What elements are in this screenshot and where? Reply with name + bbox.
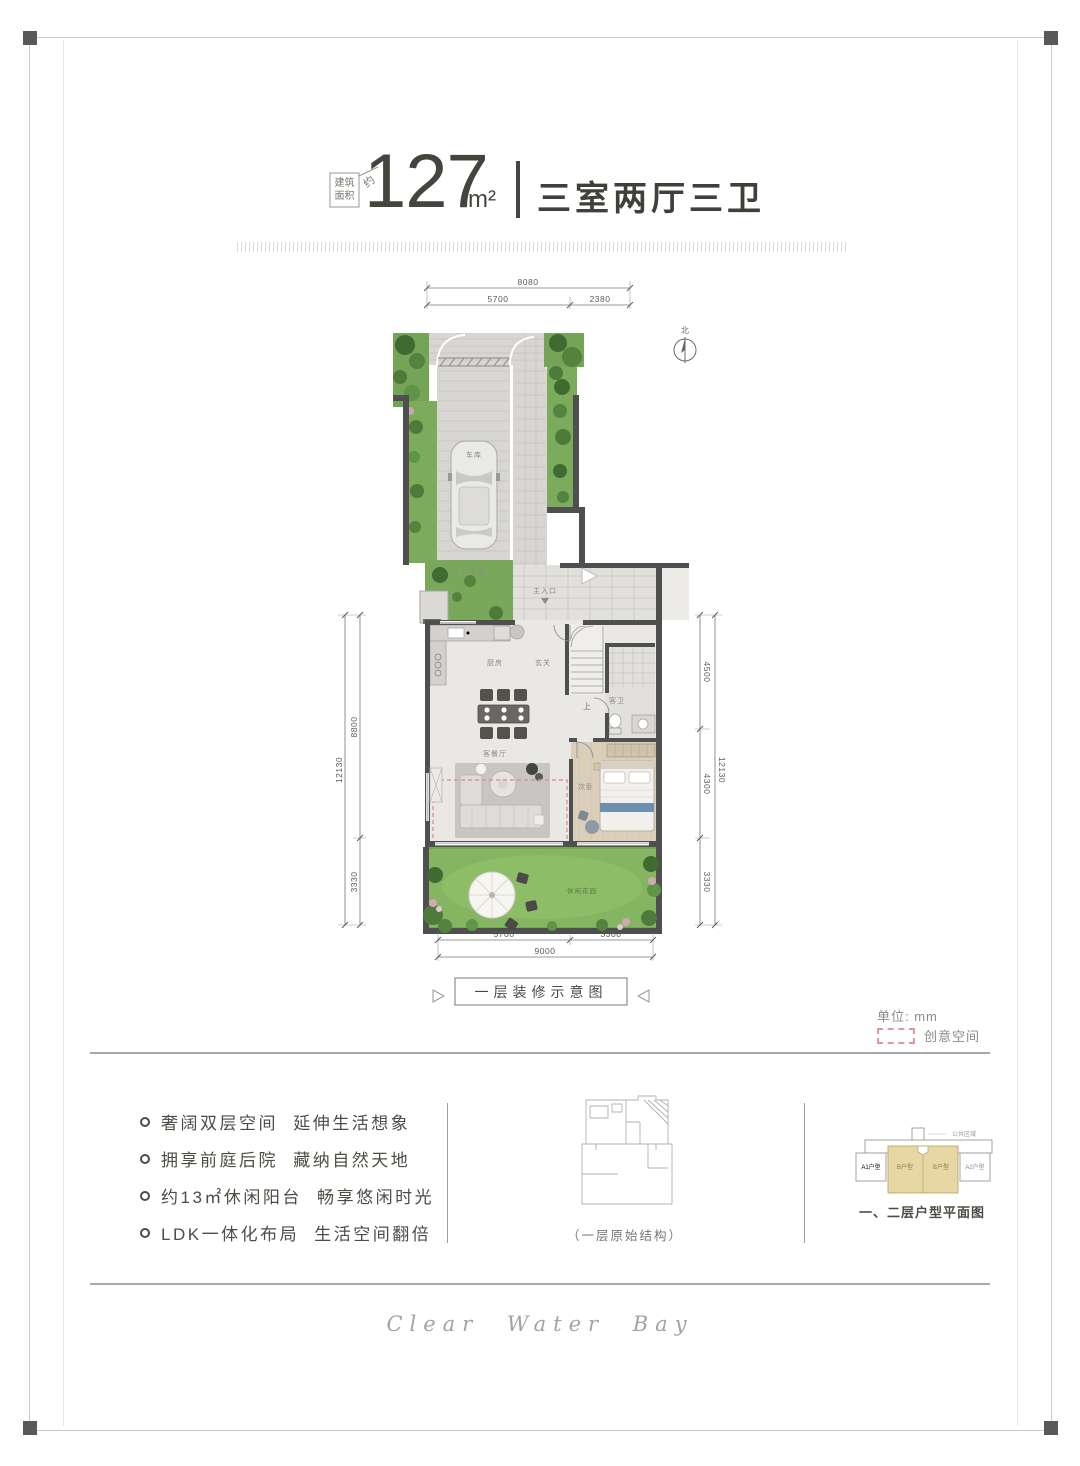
rear-garden: 休闲花园 <box>423 847 662 934</box>
key-plan-thumbnail: 公共区域 A1户型 B户型 B户型 A2户型 <box>848 1116 1000 1198</box>
dim-bottom-total: 9000 <box>535 946 556 956</box>
living-dining-label: 客餐厅 <box>483 749 507 758</box>
bedroom-label: 次卧 <box>578 782 594 791</box>
area-prefix-line1: 建筑 <box>335 176 355 189</box>
dim-top-left: 5700 <box>488 294 509 304</box>
stairs <box>569 624 605 695</box>
living-furniture <box>455 763 550 838</box>
decor-hatch-strip <box>237 242 848 252</box>
corner-mark <box>23 1421 37 1435</box>
layout-title: 三室两厅三卫 <box>537 171 765 220</box>
dim-right-upper: 4500 <box>702 662 712 683</box>
feature-item: 拥享前庭后院 藏纳自然天地 <box>140 1140 434 1177</box>
corner-mark <box>1044 1421 1058 1435</box>
dimension-right: 4500 4300 3330 12130 <box>695 612 727 928</box>
dimension-left: 12130 8800 3330 <box>334 612 366 928</box>
unit-note: 单位: mm <box>877 1006 938 1025</box>
compass-icon: 北 <box>674 326 696 363</box>
stairs-up-label: 上 <box>583 702 591 711</box>
feature-text: 拥享前庭后院 藏纳自然天地 <box>161 1146 410 1171</box>
dim-top-total: 8080 <box>518 277 539 287</box>
dimension-top: 8080 5700 2380 <box>424 277 633 309</box>
dim-left-upper: 8800 <box>349 717 359 738</box>
plan-caption-text: 一层装修示意图 <box>475 984 608 1000</box>
scan-line-left <box>63 40 64 1426</box>
dim-right-middle: 4300 <box>702 774 712 795</box>
section-divider <box>90 1052 990 1054</box>
feature-item: LDK一体化布局 生活空间翻倍 <box>140 1214 434 1251</box>
bullet-icon <box>140 1228 150 1238</box>
compass-north-label: 北 <box>681 326 689 335</box>
plan-caption: 一层装修示意图 <box>433 978 649 1005</box>
dim-right-outer: 12130 <box>717 757 727 783</box>
feature-text: LDK一体化布局 生活空间翻倍 <box>161 1220 431 1245</box>
original-structure-thumbnail <box>560 1092 690 1217</box>
caption-arrow-right-icon <box>638 990 649 1002</box>
feature-item: 约13㎡休闲阳台 畅享悠闲时光 <box>140 1177 434 1214</box>
bullet-icon <box>140 1191 150 1201</box>
area-prefix-line2: 面积 <box>335 190 355 202</box>
dining-table <box>478 689 529 739</box>
feature-text: 奢阔双层空间 延伸生活想象 <box>161 1109 410 1134</box>
bullet-icon <box>140 1154 150 1164</box>
key-plan-unit-b-right: B户型 <box>933 1163 949 1171</box>
section-divider <box>90 1283 990 1285</box>
entry-garden-label: 入户花园 <box>454 567 486 576</box>
kitchen-label: 厨房 <box>487 658 503 667</box>
dim-left-lower: 3330 <box>349 872 359 893</box>
interior: 上 厨房 玄关 客卫 <box>425 620 662 847</box>
original-structure-caption: （一层原始结构） <box>545 1225 705 1244</box>
column-divider <box>804 1103 805 1243</box>
corner-mark <box>23 31 37 45</box>
car: 车库 <box>448 441 500 549</box>
guest-bath-label: 客卫 <box>609 696 625 705</box>
feature-list: 奢阔双层空间 延伸生活想象 拥享前庭后院 藏纳自然天地 约13㎡休闲阳台 畅享悠… <box>140 1103 434 1251</box>
creative-space-swatch <box>877 1028 915 1044</box>
corner-mark <box>1044 31 1058 45</box>
header-divider-bar <box>516 161 520 218</box>
floor-plan: 8080 5700 2380 北 <box>320 275 750 1020</box>
feature-item: 奢阔双层空间 延伸生活想象 <box>140 1103 434 1140</box>
brand-script-text: Clear Water Bay <box>0 1312 1080 1336</box>
key-plan-public-area: 公共区域 <box>952 1130 976 1138</box>
leisure-garden-label: 休闲花园 <box>567 886 597 895</box>
foyer-label: 玄关 <box>535 658 551 667</box>
scan-line-right <box>1017 40 1018 1426</box>
dim-right-lower: 3330 <box>702 872 712 893</box>
floorplan-page: 建筑 面积 约 127 m² 三室两厅三卫 8080 5700 2380 北 <box>0 0 1080 1466</box>
key-plan-unit-a1: A1户型 <box>861 1163 880 1171</box>
key-plan-unit-b-left: B户型 <box>897 1163 913 1171</box>
caption-arrow-left-icon <box>433 990 444 1002</box>
key-plan-caption: 一、二层户型平面图 <box>842 1202 1002 1221</box>
entry-porch: 主入口 <box>513 563 689 623</box>
column-divider <box>447 1103 448 1243</box>
creative-space-label: 创意空间 <box>924 1026 980 1045</box>
bullet-icon <box>140 1117 150 1127</box>
feature-text: 约13㎡休闲阳台 畅享悠闲时光 <box>161 1183 434 1208</box>
legend-creative-space: 创意空间 <box>877 1026 980 1045</box>
area-unit: m² <box>468 186 496 214</box>
key-plan-unit-a2: A2户型 <box>965 1163 984 1171</box>
dim-bottom-right: 3300 <box>601 929 622 939</box>
main-entrance-label: 主入口 <box>533 586 557 595</box>
garage-label: 车库 <box>466 450 482 459</box>
dim-left-outer: 12130 <box>334 757 344 783</box>
dim-bottom-left: 5700 <box>494 929 515 939</box>
dim-top-right: 2380 <box>590 294 611 304</box>
bath-fixtures <box>609 714 655 734</box>
